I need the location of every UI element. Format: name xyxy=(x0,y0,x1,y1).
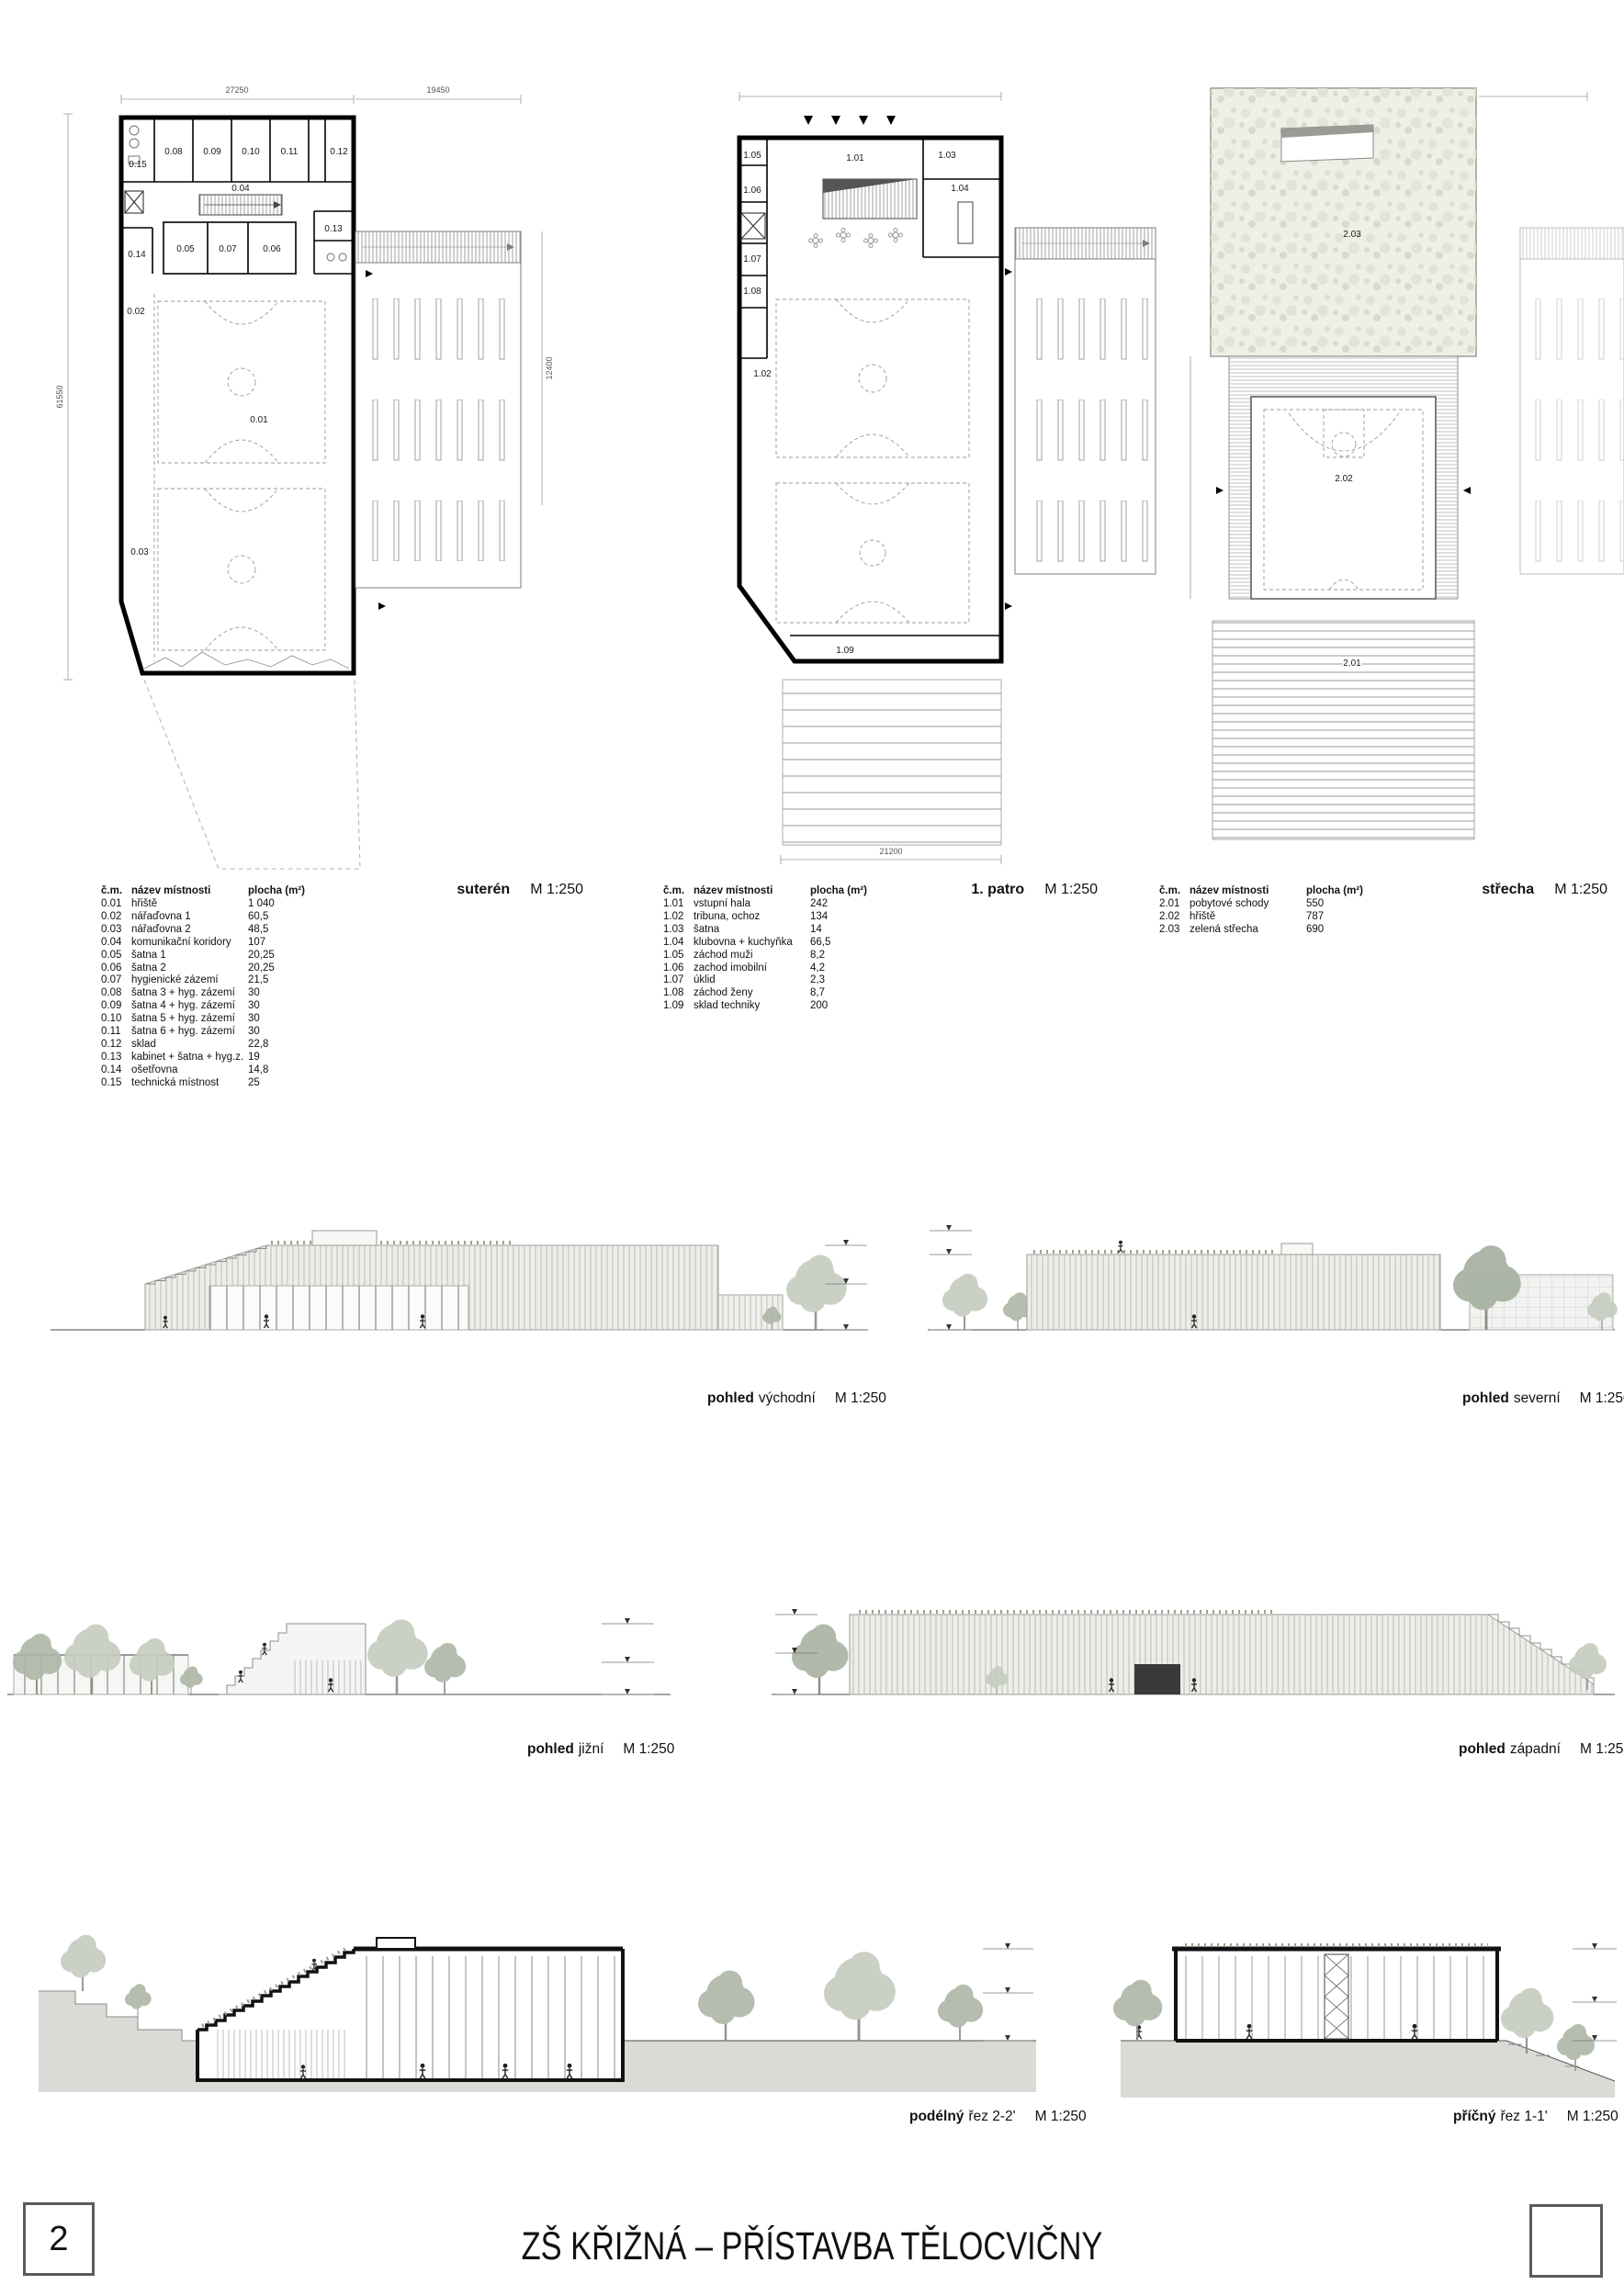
page-number: 2 xyxy=(49,2220,68,2259)
section-marker xyxy=(1005,602,1012,610)
sheet-title: ZŠ KŘIŽNÁ – PŘÍSTAVBA TĚLOCVIČNY xyxy=(163,2224,1461,2269)
caption-pohled-severni: pohledseverní M 1:250 xyxy=(1462,1390,1624,1407)
trees-left xyxy=(942,1274,1033,1330)
svg-text:12400: 12400 xyxy=(545,356,554,379)
section-long-drawing xyxy=(28,1892,1047,2131)
legend-row: 0.15technická místnost25 xyxy=(101,1077,413,1090)
section-cross-drawing xyxy=(1111,1892,1624,2131)
caption-podelny-rez: podélnýřez 2-2' M 1:250 xyxy=(909,2109,1087,2125)
legend-rows: 2.01pobytové schody5502.02hřiště7872.03z… xyxy=(1159,898,1472,937)
svg-text:0.03: 0.03 xyxy=(130,547,149,557)
legend-row: 1.04klubovna + kuchyňka66,5 xyxy=(663,937,976,950)
svg-text:0.10: 0.10 xyxy=(242,147,260,157)
caption-pohled-zapadni: pohledzápadní M 1:250 xyxy=(1459,1741,1624,1758)
svg-text:0.15: 0.15 xyxy=(129,160,147,170)
legend-row: 1.03šatna14 xyxy=(663,924,976,937)
existing-building xyxy=(1520,228,1624,574)
legend-row: 0.12sklad22,8 xyxy=(101,1039,413,1052)
caption-pohled-jizni: pohledjižní M 1:250 xyxy=(527,1741,674,1758)
ground-mass xyxy=(1121,2041,1615,2098)
svg-text:1.06: 1.06 xyxy=(743,186,761,196)
legend-row: 0.08šatna 3 + hyg. zázemí30 xyxy=(101,987,413,1000)
legend-header: č.m. název místnosti plocha (m²) xyxy=(1159,884,1472,897)
drawing-sheet: 27250 19450 61550 12400 xyxy=(0,0,1624,2296)
svg-text:0.08: 0.08 xyxy=(164,147,183,157)
section-marker xyxy=(1005,268,1012,276)
plan-patro-drawing: 21200 1.05 1.06 1.07 xyxy=(698,73,1157,882)
legend-row: 1.08záchod ženy8,7 xyxy=(663,987,976,1000)
entrance-opening xyxy=(1134,1664,1180,1694)
legend-strecha: č.m. název místnosti plocha (m²) 2.01pob… xyxy=(1159,884,1472,937)
legend-rows: 0.01hřiště1 0400.02nářaďovna 160,50.03ná… xyxy=(101,898,413,1090)
green-roof xyxy=(1211,88,1476,356)
legend-row: 0.07hygienické zázemí21,5 xyxy=(101,974,413,987)
legend-row: 0.09šatna 4 + hyg. zázemí30 xyxy=(101,1000,413,1013)
legend-row: 0.01hřiště1 040 xyxy=(101,898,413,911)
svg-text:0.02: 0.02 xyxy=(127,307,145,317)
tribune-block xyxy=(823,179,917,219)
section-marker xyxy=(1216,487,1224,494)
legend-row: 0.06šatna 220,25 xyxy=(101,962,413,975)
page-number-box: 2 xyxy=(23,2202,95,2276)
svg-text:1.09: 1.09 xyxy=(836,646,854,656)
legend-row: 2.03zelená střecha690 xyxy=(1159,924,1472,937)
svg-text:0.09: 0.09 xyxy=(203,147,221,157)
svg-text:1.02: 1.02 xyxy=(753,369,772,379)
svg-text:1.04: 1.04 xyxy=(951,184,969,194)
legend-row: 0.11šatna 6 + hyg. zázemí30 xyxy=(101,1026,413,1039)
section-marker xyxy=(366,270,373,277)
plan-strecha-drawing: 2.03 2.02 2.01 xyxy=(1176,73,1624,882)
existing-building xyxy=(1015,228,1156,574)
svg-text:1.05: 1.05 xyxy=(743,151,761,161)
legend-patro: č.m. název místnosti plocha (m²) 1.01vst… xyxy=(663,884,976,1013)
svg-text:19450: 19450 xyxy=(426,85,449,95)
section-marker xyxy=(378,602,386,610)
corridor-stair xyxy=(199,195,282,215)
legend-row: 1.05záchod muži8,2 xyxy=(663,950,976,962)
legend-row: 2.02hřiště787 xyxy=(1159,911,1472,924)
svg-text:0.14: 0.14 xyxy=(128,250,146,260)
corner-box xyxy=(1529,2204,1603,2278)
svg-text:2.01: 2.01 xyxy=(1343,658,1361,669)
trees-right xyxy=(367,1619,466,1694)
svg-text:1.07: 1.07 xyxy=(743,254,761,264)
legend-rows: 1.01vstupní hala2421.02tribuna, ochoz134… xyxy=(663,898,976,1013)
svg-text:0.04: 0.04 xyxy=(231,184,250,194)
svg-text:0.12: 0.12 xyxy=(330,147,348,157)
svg-text:1.03: 1.03 xyxy=(938,151,956,161)
building-facade xyxy=(145,1231,783,1330)
svg-text:1.08: 1.08 xyxy=(743,287,761,297)
building-facade xyxy=(1027,1244,1613,1330)
elevation-south-drawing xyxy=(0,1525,680,1754)
svg-text:0.07: 0.07 xyxy=(219,244,237,254)
svg-text:61550: 61550 xyxy=(55,385,64,408)
caption-pricny-rez: příčnýřez 1-1' M 1:250 xyxy=(1453,2109,1618,2125)
elevation-east-drawing xyxy=(37,1176,882,1368)
elevation-north-drawing xyxy=(919,1176,1624,1368)
outdoor-terraces xyxy=(783,680,1001,845)
outdoor-stairs xyxy=(1212,621,1474,839)
projection-dashed xyxy=(144,680,360,869)
svg-text:27250: 27250 xyxy=(225,85,248,95)
lattice-tower xyxy=(1325,1954,1348,2039)
legend-suteren: č.m. název místnosti plocha (m²) 0.01hři… xyxy=(101,884,413,1090)
level-markers xyxy=(602,1618,654,1694)
trees xyxy=(762,1255,847,1330)
legend-row: 0.14ošetřovna14,8 xyxy=(101,1064,413,1077)
legend-row: 0.10šatna 5 + hyg. zázemí30 xyxy=(101,1013,413,1026)
svg-text:21200: 21200 xyxy=(879,847,902,856)
building-facade xyxy=(850,1612,1594,1694)
elevation-west-drawing xyxy=(762,1525,1624,1754)
legend-header: č.m. název místnosti plocha (m²) xyxy=(101,884,413,897)
section-marker xyxy=(1463,487,1471,494)
tribune-steps xyxy=(219,1624,366,1694)
plan-caption-patro: 1. patroM 1:250 xyxy=(928,882,1098,898)
building-section xyxy=(197,1938,623,2080)
legend-row: 2.01pobytové schody550 xyxy=(1159,898,1472,911)
svg-text:2.03: 2.03 xyxy=(1343,230,1361,240)
legend-row: 0.03nářaďovna 248,5 xyxy=(101,924,413,937)
legend-row: 0.04komunikační koridory107 xyxy=(101,937,413,950)
level-markers xyxy=(983,1943,1033,2041)
legend-row: 1.02tribuna, ochoz134 xyxy=(663,911,976,924)
svg-text:0.05: 0.05 xyxy=(176,244,195,254)
caption-pohled-vychodni: pohledvýchodní M 1:250 xyxy=(707,1390,886,1407)
plan-suteren-drawing: 27250 19450 61550 12400 xyxy=(55,73,625,882)
building-section xyxy=(1172,1945,1501,2041)
svg-text:0.01: 0.01 xyxy=(250,415,268,425)
svg-text:0.11: 0.11 xyxy=(281,147,299,157)
entrance-arrows xyxy=(804,116,896,125)
svg-text:2.02: 2.02 xyxy=(1335,474,1353,484)
svg-text:0.13: 0.13 xyxy=(324,224,343,234)
legend-row: 0.13kabinet + šatna + hyg.z.19 xyxy=(101,1052,413,1064)
plan-caption-strecha: střechaM 1:250 xyxy=(1470,882,1607,898)
legend-row: 0.02nářaďovna 160,5 xyxy=(101,911,413,924)
legend-row: 1.07úklid2,3 xyxy=(663,974,976,987)
legend-row: 0.05šatna 120,25 xyxy=(101,950,413,962)
existing-building xyxy=(355,231,521,588)
legend-row: 1.09sklad techniky200 xyxy=(663,1000,976,1013)
legend-row: 1.01vstupní hala242 xyxy=(663,898,976,911)
plan-caption-suteren: suterénM 1:250 xyxy=(395,882,583,898)
svg-text:0.06: 0.06 xyxy=(263,244,281,254)
svg-text:1.01: 1.01 xyxy=(846,153,864,163)
legend-row: 1.06zachod imobilní4,2 xyxy=(663,962,976,975)
